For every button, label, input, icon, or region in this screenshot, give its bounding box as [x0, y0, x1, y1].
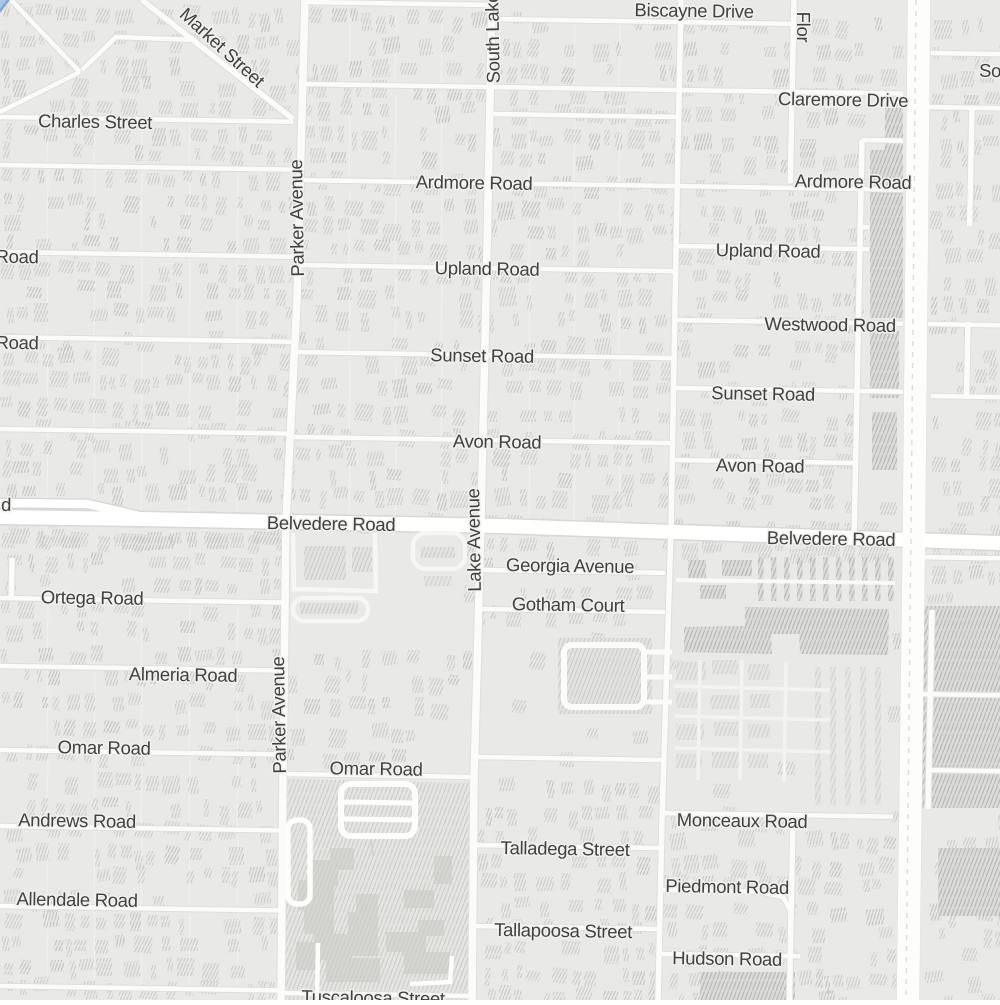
svg-text:Gotham Court: Gotham Court — [512, 593, 625, 616]
svg-text:Ardmore Road: Ardmore Road — [416, 171, 533, 194]
svg-text:Talladega Street: Talladega Street — [500, 837, 629, 860]
svg-text:Almeria Road: Almeria Road — [129, 663, 238, 686]
svg-text:Tuscaloosa Street: Tuscaloosa Street — [301, 986, 445, 1000]
svg-text:Georgia Avenue: Georgia Avenue — [506, 554, 634, 577]
svg-text:Upland Road: Upland Road — [716, 239, 821, 262]
svg-text:Upland Road: Upland Road — [435, 257, 540, 280]
svg-text:Belvedere Road: Belvedere Road — [767, 527, 896, 550]
svg-text:Allendale Road: Allendale Road — [16, 888, 138, 911]
svg-text:Tallapoosa Street: Tallapoosa Street — [494, 919, 632, 942]
svg-text:Parker Avenue: Parker Avenue — [267, 656, 290, 773]
svg-text:South Lake: South Lake — [481, 0, 504, 84]
svg-text:Avon Road: Avon Road — [716, 454, 805, 476]
svg-text:Parker Avenue: Parker Avenue — [285, 159, 308, 276]
svg-text:Westwood Road: Westwood Road — [764, 313, 896, 336]
svg-text:Piedmont Road: Piedmont Road — [665, 875, 789, 898]
svg-text:Charles Street: Charles Street — [38, 110, 153, 133]
svg-text:Sunset Road: Sunset Road — [711, 382, 815, 405]
svg-text:Sou: Sou — [979, 60, 1000, 82]
svg-text:Lake Avenue: Lake Avenue — [462, 488, 485, 592]
svg-text:Monceaux Road: Monceaux Road — [677, 809, 808, 832]
svg-text:Road: Road — [0, 332, 39, 354]
svg-text:d: d — [1, 494, 11, 515]
svg-text:Avon Road: Avon Road — [453, 430, 542, 452]
svg-text:Ortega Road: Ortega Road — [41, 586, 144, 609]
svg-text:Hudson Road: Hudson Road — [672, 947, 782, 970]
svg-text:Andrews Road: Andrews Road — [18, 809, 136, 832]
svg-text:Omar Road: Omar Road — [329, 757, 422, 779]
svg-text:Flor: Flor — [793, 12, 814, 43]
svg-text:Road: Road — [0, 246, 39, 268]
svg-text:Biscayne Drive: Biscayne Drive — [634, 0, 754, 22]
svg-text:Claremore Drive: Claremore Drive — [778, 88, 908, 111]
svg-text:Belvedere Road: Belvedere Road — [267, 512, 396, 535]
svg-text:Omar Road: Omar Road — [57, 736, 150, 758]
svg-text:Ardmore Road: Ardmore Road — [795, 170, 912, 193]
svg-text:Sunset Road: Sunset Road — [430, 344, 534, 367]
